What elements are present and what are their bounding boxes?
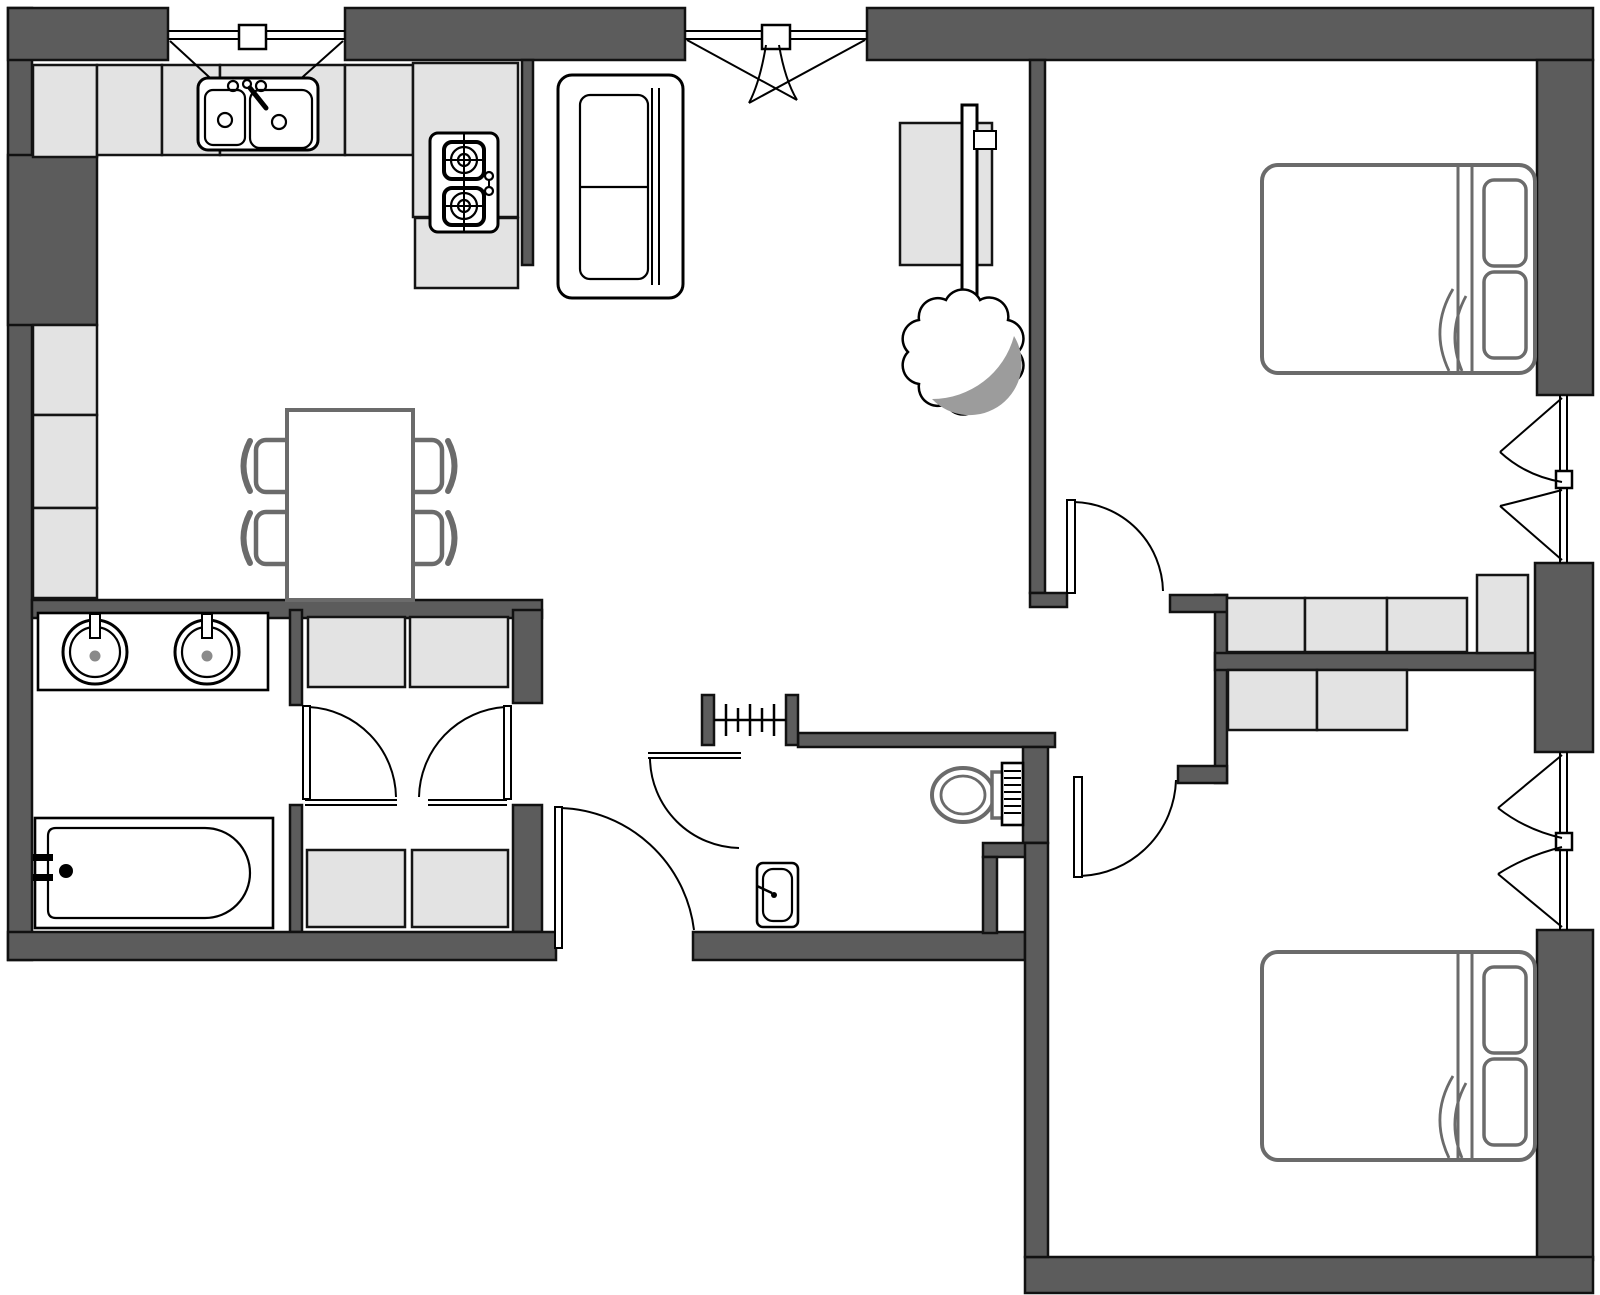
bath-dressing-wall-lower bbox=[290, 805, 302, 932]
closet-wall-bottom-flange bbox=[1178, 766, 1227, 783]
dressing-wardrobe bbox=[412, 850, 508, 927]
casement-arc bbox=[1500, 452, 1562, 482]
tub-faucet bbox=[33, 874, 53, 881]
left-wall bbox=[8, 8, 32, 960]
right-wall-upper bbox=[1537, 60, 1593, 395]
hall-south-door-leaf bbox=[555, 807, 562, 948]
kitchen-counter bbox=[345, 65, 413, 155]
bedroom1-wardrobe bbox=[1227, 598, 1305, 652]
bath-dressing-wall-upper bbox=[290, 610, 302, 705]
top-wall-mid bbox=[345, 8, 685, 60]
bedroom2-left-wall bbox=[1025, 843, 1048, 1257]
chair-backrest bbox=[448, 441, 455, 491]
sink-drain bbox=[202, 651, 213, 662]
vanity-faucet bbox=[202, 614, 212, 638]
dressing-door-left-leaf bbox=[303, 706, 310, 799]
dressing-door-right-arc bbox=[419, 707, 505, 797]
bed-2-pillow bbox=[1484, 967, 1526, 1053]
dressing-door-right-leaf bbox=[504, 706, 511, 799]
chair-backrest bbox=[244, 513, 251, 563]
dressing-wardrobe bbox=[308, 617, 405, 687]
dressing-door-left-arc bbox=[309, 707, 396, 797]
closet-wall-web bbox=[1215, 595, 1227, 783]
dressing-wardrobe bbox=[410, 617, 508, 687]
casement-arc bbox=[1498, 808, 1562, 838]
bed-2-pillow bbox=[1484, 1059, 1526, 1145]
kitchen-counter bbox=[97, 65, 162, 155]
bottom-wall-mid bbox=[693, 932, 1025, 960]
left-wall-chase bbox=[8, 155, 97, 325]
dining-table bbox=[287, 410, 413, 600]
wc-top-wall bbox=[798, 733, 1055, 747]
toilet-cistern bbox=[1002, 763, 1023, 825]
casement-swing bbox=[1500, 398, 1562, 452]
dressing-hall-wall-lower bbox=[513, 805, 542, 932]
bedroom2-door-arc bbox=[1081, 780, 1176, 876]
kitchen-window-mullion bbox=[239, 25, 266, 49]
wardrobe-wall bbox=[1215, 653, 1535, 670]
bedroom1-wardrobe-tall bbox=[1477, 575, 1528, 653]
bedroom2-wardrobe bbox=[1228, 670, 1317, 730]
bed-1-pillow bbox=[1484, 272, 1526, 358]
right-wall-lower bbox=[1537, 930, 1593, 1260]
bottom-wall-right bbox=[1025, 1257, 1593, 1293]
top-wall-right bbox=[867, 8, 1593, 60]
bathroom-layer bbox=[33, 613, 273, 928]
casement-arc bbox=[1498, 847, 1562, 874]
bedroom1-door-stub bbox=[1030, 593, 1067, 607]
wc-sink-drain bbox=[771, 892, 777, 898]
tub-drain bbox=[59, 864, 73, 878]
bedroom1-door-leaf bbox=[1067, 500, 1075, 593]
casement-swing bbox=[1500, 506, 1562, 560]
floor-plan bbox=[0, 0, 1600, 1295]
dressing-wardrobe bbox=[307, 850, 405, 927]
tv-mount bbox=[974, 131, 996, 149]
bed-1-pillow bbox=[1484, 180, 1526, 266]
radiator-stub-right bbox=[786, 695, 798, 745]
kitchen-stub-wall bbox=[522, 60, 533, 265]
sideboard-unit bbox=[33, 325, 97, 415]
sideboard-unit bbox=[33, 415, 97, 508]
hall-south-door-arc bbox=[561, 808, 694, 930]
dressing-hall-wall-upper bbox=[513, 610, 542, 703]
vanity-faucet bbox=[90, 614, 100, 638]
chair-backrest bbox=[448, 513, 455, 563]
bedroom2-wardrobe bbox=[1317, 670, 1407, 730]
bottom-wall-left bbox=[8, 932, 556, 960]
wc-door-arc bbox=[650, 759, 739, 848]
bedroom2-door-leaf bbox=[1074, 777, 1082, 877]
wc-duct-wall bbox=[983, 857, 997, 933]
right-wall-pier bbox=[1535, 563, 1593, 752]
floor-plan-svg bbox=[0, 0, 1600, 1295]
casement-arc bbox=[1500, 490, 1562, 506]
bedroom1-wardrobe bbox=[1387, 598, 1467, 652]
casement-swing bbox=[1498, 755, 1562, 808]
window-mullion bbox=[1556, 471, 1572, 488]
sideboard-unit bbox=[33, 508, 97, 598]
chair-backrest bbox=[244, 441, 251, 491]
wc-right-wall bbox=[1023, 747, 1048, 843]
tub-faucet bbox=[33, 854, 53, 861]
bedroom1-door-arc bbox=[1074, 502, 1163, 591]
bedroom1-wardrobe bbox=[1305, 598, 1387, 652]
casement-swing bbox=[1498, 874, 1562, 927]
living-bedroom-wall bbox=[1030, 60, 1045, 593]
closet-wall-top-flange bbox=[1170, 595, 1227, 612]
top-wall-left bbox=[8, 8, 168, 60]
dining-layer bbox=[244, 410, 455, 600]
kitchen-counter bbox=[33, 65, 97, 157]
radiator-stub-left bbox=[702, 695, 714, 745]
sink-drain bbox=[90, 651, 101, 662]
